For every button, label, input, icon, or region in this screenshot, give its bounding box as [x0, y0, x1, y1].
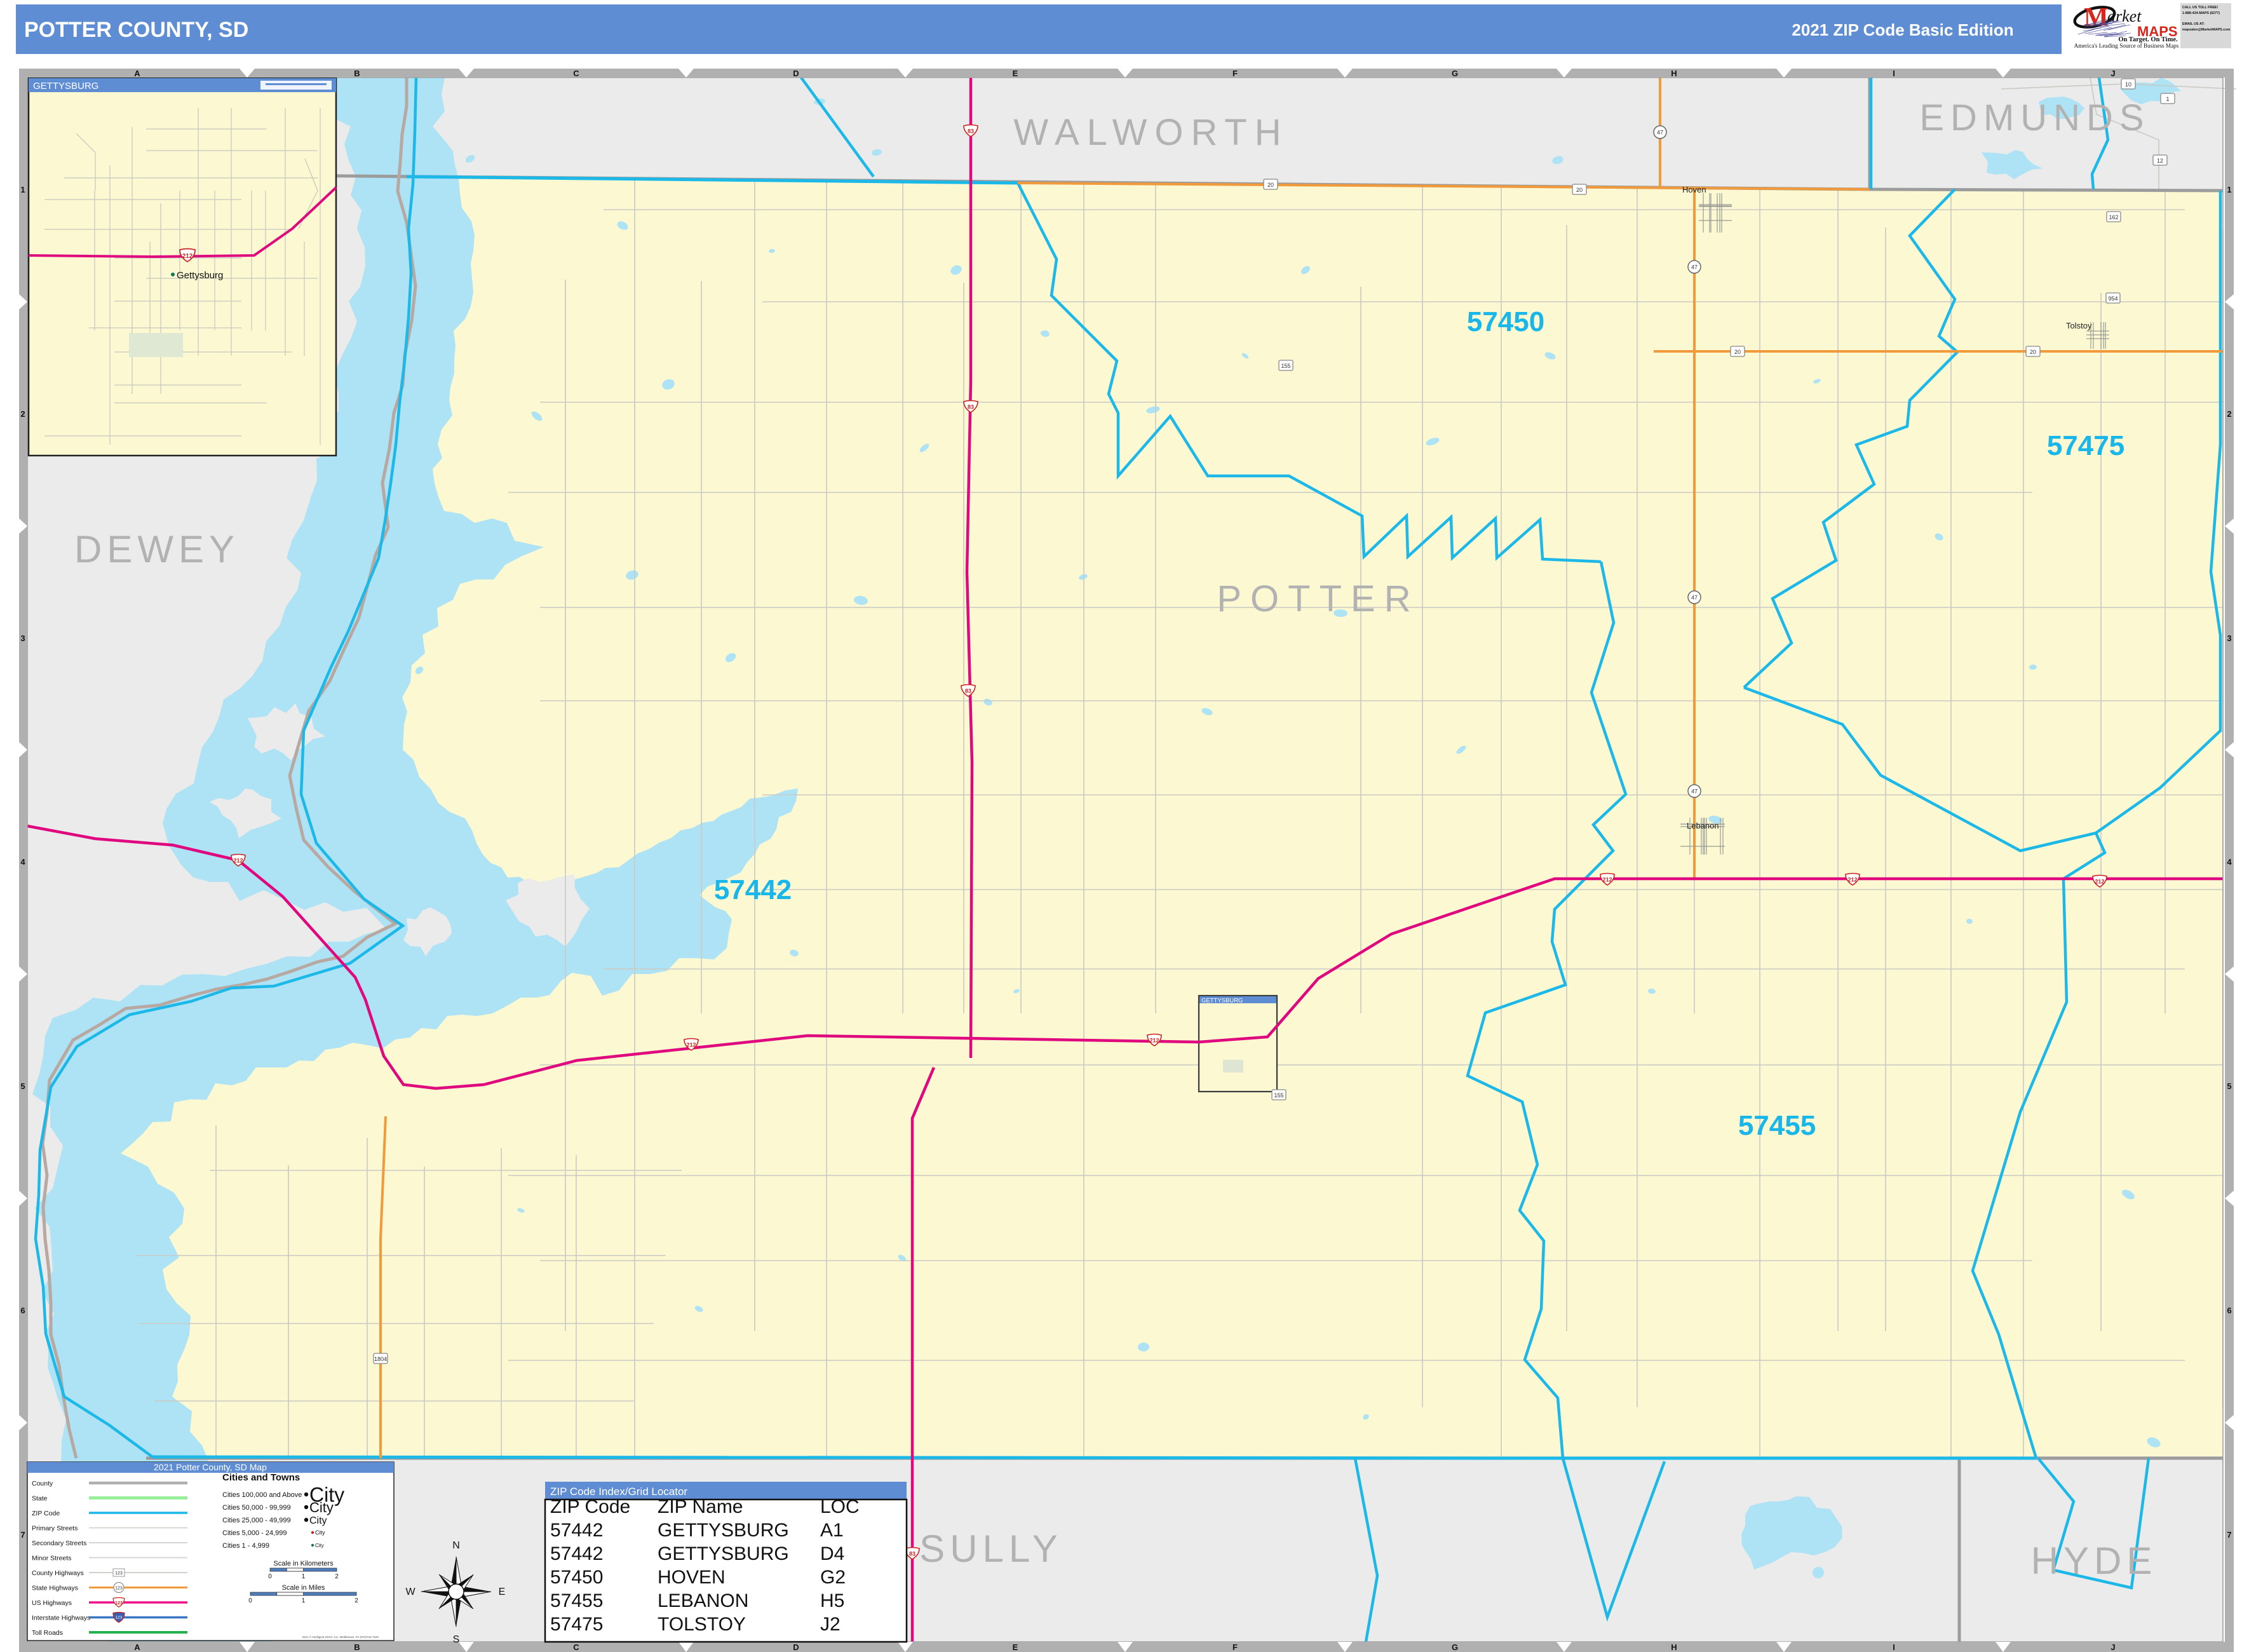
svg-text:212: 212	[2095, 879, 2104, 885]
svg-text:J: J	[2110, 69, 2115, 78]
svg-text:W: W	[405, 1587, 415, 1597]
svg-text:Lebanon: Lebanon	[1687, 821, 1719, 830]
svg-text:Cities and Towns: Cities and Towns	[222, 1472, 300, 1483]
svg-text:57455: 57455	[1738, 1110, 1816, 1141]
svg-text:1: 1	[2166, 96, 2169, 102]
svg-text:CALL US TOLL FREE!: CALL US TOLL FREE!	[2182, 6, 2218, 10]
svg-text:0: 0	[248, 1597, 252, 1604]
svg-text:1-888-434-MAPS (6277): 1-888-434-MAPS (6277)	[2182, 11, 2220, 15]
svg-text:G: G	[1452, 1642, 1458, 1652]
svg-text:D: D	[793, 1642, 799, 1652]
svg-text:A: A	[134, 69, 140, 78]
svg-text:LOC: LOC	[820, 1496, 860, 1517]
svg-text:57442: 57442	[714, 874, 792, 905]
svg-text:Cities 50,000 - 99,999: Cities 50,000 - 99,999	[222, 1504, 291, 1512]
svg-text:123: 123	[115, 1571, 123, 1576]
svg-text:US Highways: US Highways	[32, 1599, 72, 1607]
svg-text:H: H	[1671, 69, 1677, 78]
svg-text:WALWORTH: WALWORTH	[1013, 112, 1288, 153]
svg-text:E: E	[1013, 69, 1018, 78]
svg-text:1: 1	[2227, 185, 2231, 194]
svg-text:3: 3	[20, 633, 25, 643]
svg-text:57442: 57442	[550, 1543, 603, 1564]
svg-text:E: E	[1013, 1642, 1018, 1652]
svg-text:D4: D4	[820, 1543, 844, 1564]
svg-text:57450: 57450	[550, 1567, 603, 1588]
svg-text:10: 10	[2125, 81, 2131, 88]
svg-text:0: 0	[268, 1573, 272, 1580]
svg-text:mapsales@MarketMAPS.com: mapsales@MarketMAPS.com	[2182, 28, 2231, 32]
svg-text:5: 5	[20, 1081, 25, 1091]
svg-text:20: 20	[1576, 187, 1583, 193]
svg-text:DEWEY: DEWEY	[74, 528, 240, 571]
svg-text:57455: 57455	[550, 1590, 603, 1611]
svg-text:Hoven: Hoven	[1682, 185, 1706, 194]
svg-text:Cities 1 - 4,999: Cities 1 - 4,999	[222, 1542, 269, 1550]
svg-text:4: 4	[2227, 857, 2232, 867]
svg-text:4: 4	[20, 857, 25, 867]
svg-text:D: D	[793, 69, 799, 78]
svg-text:123: 123	[115, 1600, 123, 1606]
svg-text:City: City	[309, 1515, 327, 1526]
svg-text:212: 212	[182, 253, 193, 260]
svg-text:2: 2	[2227, 409, 2231, 419]
svg-text:Gettysburg: Gettysburg	[177, 270, 223, 281]
svg-text:Cities 25,000 - 49,999: Cities 25,000 - 49,999	[222, 1517, 291, 1524]
svg-text:47: 47	[1691, 264, 1698, 271]
svg-text:ZIP Code: ZIP Code	[550, 1496, 630, 1517]
svg-text:HOVEN: HOVEN	[658, 1567, 726, 1588]
svg-text:212: 212	[1602, 877, 1612, 883]
svg-text:5: 5	[2227, 1081, 2231, 1091]
svg-text:ZIP Name: ZIP Name	[658, 1496, 743, 1517]
svg-text:H5: H5	[820, 1590, 844, 1611]
svg-text:TOLSTOY: TOLSTOY	[658, 1614, 746, 1635]
svg-text:S: S	[453, 1634, 460, 1645]
svg-text:A1: A1	[820, 1520, 844, 1541]
svg-text:1: 1	[20, 185, 25, 194]
svg-text:City: City	[315, 1529, 325, 1536]
svg-text:20: 20	[1734, 349, 1741, 355]
svg-text:2021 © Intelligent Direct, Inc: 2021 © Intelligent Direct, Inc. Middleto…	[302, 1635, 379, 1639]
svg-text:C: C	[573, 1642, 579, 1652]
svg-text:C: C	[573, 69, 579, 78]
svg-text:Scale in Miles: Scale in Miles	[282, 1584, 325, 1592]
svg-text:LEBANON: LEBANON	[658, 1590, 748, 1611]
svg-text:Scale in Kilometers: Scale in Kilometers	[273, 1560, 334, 1567]
svg-text:SULLY: SULLY	[919, 1527, 1063, 1570]
svg-text:1804: 1804	[374, 1356, 387, 1362]
svg-text:6: 6	[2227, 1306, 2231, 1315]
svg-text:2021 Potter County, SD Map: 2021 Potter County, SD Map	[154, 1462, 267, 1472]
svg-text:212: 212	[233, 858, 243, 864]
svg-text:57475: 57475	[550, 1614, 603, 1635]
svg-text:N: N	[452, 1540, 460, 1551]
svg-text:State Highways: State Highways	[32, 1585, 78, 1592]
svg-text:2: 2	[335, 1573, 339, 1580]
svg-text:155: 155	[1281, 363, 1290, 369]
svg-text:2: 2	[20, 409, 25, 419]
svg-text:G2: G2	[820, 1567, 846, 1588]
svg-text:57475: 57475	[2047, 430, 2124, 461]
svg-text:212: 212	[1847, 877, 1857, 883]
svg-text:954: 954	[2108, 295, 2117, 302]
svg-text:Cities 100,000 and Above: Cities 100,000 and Above	[222, 1491, 302, 1499]
svg-text:GETTYSBURG: GETTYSBURG	[658, 1543, 789, 1564]
svg-text:123: 123	[116, 1616, 123, 1620]
svg-text:I: I	[1893, 69, 1895, 78]
svg-text:EDMUNDS: EDMUNDS	[1919, 97, 2150, 139]
svg-text:3: 3	[2227, 633, 2231, 643]
svg-text:City: City	[315, 1543, 324, 1548]
svg-text:7: 7	[20, 1530, 25, 1540]
svg-text:Tolstoy: Tolstoy	[2066, 321, 2092, 330]
svg-text:83: 83	[909, 1551, 915, 1557]
svg-text:123: 123	[115, 1587, 123, 1591]
svg-text:County Highways: County Highways	[32, 1569, 84, 1577]
svg-text:H: H	[1671, 1642, 1677, 1652]
svg-text:E: E	[499, 1587, 506, 1597]
svg-text:City: City	[309, 1500, 334, 1515]
svg-text:47: 47	[1691, 595, 1698, 601]
svg-text:B: B	[354, 1642, 360, 1652]
svg-text:EMAIL US AT:: EMAIL US AT:	[2182, 22, 2205, 26]
svg-text:F: F	[1232, 69, 1238, 78]
svg-text:47: 47	[1691, 789, 1698, 795]
svg-text:HYDE: HYDE	[2031, 1540, 2158, 1582]
svg-text:155: 155	[1274, 1092, 1283, 1099]
svg-text:POTTER: POTTER	[1217, 578, 1419, 619]
svg-text:83: 83	[968, 404, 974, 410]
svg-text:162: 162	[2109, 214, 2118, 220]
svg-text:212: 212	[1149, 1038, 1159, 1044]
svg-text:A: A	[134, 1642, 140, 1652]
svg-text:47: 47	[1657, 130, 1663, 136]
svg-text:GETTYSBURG: GETTYSBURG	[1201, 998, 1243, 1005]
svg-text:57442: 57442	[550, 1520, 603, 1541]
svg-text:83: 83	[968, 128, 974, 135]
svg-text:J: J	[2110, 1642, 2115, 1652]
svg-text:7: 7	[2227, 1530, 2231, 1540]
svg-text:2021 ZIP Code Basic Edition: 2021 ZIP Code Basic Edition	[1792, 20, 2013, 39]
svg-text:State: State	[32, 1495, 48, 1503]
svg-text:83: 83	[965, 688, 971, 694]
svg-text:6: 6	[20, 1306, 25, 1315]
svg-text:20: 20	[1267, 182, 1274, 188]
svg-text:County: County	[32, 1480, 53, 1487]
svg-text:1: 1	[302, 1573, 306, 1580]
svg-text:J2: J2	[820, 1614, 841, 1635]
svg-text:GETTYSBURG: GETTYSBURG	[658, 1520, 789, 1541]
svg-text:12: 12	[2157, 158, 2163, 164]
svg-text:57450: 57450	[1467, 306, 1544, 337]
svg-text:America's Leading Source of B: America's Leading Source of Business Map…	[2074, 43, 2179, 49]
svg-text:Minor Streets: Minor Streets	[32, 1555, 71, 1562]
svg-text:2: 2	[355, 1597, 358, 1604]
svg-text:ZIP Code: ZIP Code	[32, 1510, 60, 1517]
svg-text:F: F	[1232, 1642, 1238, 1652]
svg-text:Cities 5,000 - 24,999: Cities 5,000 - 24,999	[222, 1529, 287, 1537]
svg-text:20: 20	[2030, 349, 2036, 355]
svg-text:212: 212	[686, 1042, 696, 1048]
svg-text:I: I	[1893, 1642, 1895, 1652]
svg-text:G: G	[1452, 69, 1458, 78]
svg-text:B: B	[354, 69, 360, 78]
svg-text:1: 1	[302, 1597, 306, 1604]
svg-text:Interstate Highways: Interstate Highways	[32, 1615, 90, 1622]
svg-text:GETTYSBURG: GETTYSBURG	[33, 81, 98, 91]
svg-text:Primary Streets: Primary Streets	[32, 1525, 78, 1533]
svg-text:POTTER COUNTY, SD: POTTER COUNTY, SD	[24, 18, 248, 42]
svg-text:Secondary Streets: Secondary Streets	[32, 1540, 86, 1547]
svg-text:Toll Roads: Toll Roads	[32, 1629, 63, 1637]
